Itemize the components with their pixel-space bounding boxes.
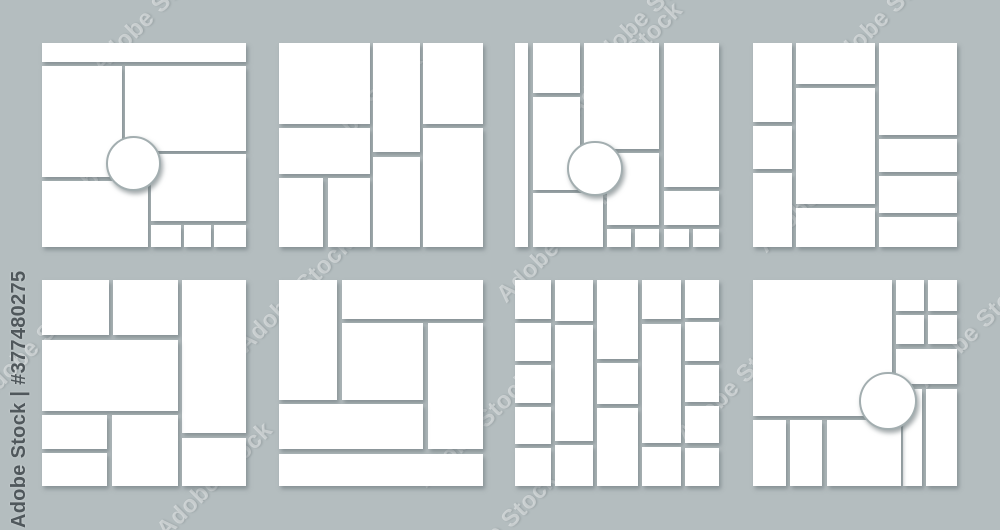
grid-cell (342, 323, 424, 400)
grid-cell (664, 229, 690, 247)
grid-cell (685, 322, 719, 361)
grid-cell (279, 43, 370, 124)
grid-cell (796, 88, 875, 204)
circle-frame (106, 136, 161, 191)
grid-cell (555, 280, 593, 321)
grid-cell (753, 43, 792, 122)
grid-cell (423, 43, 483, 124)
grid-cell (42, 415, 107, 448)
grid-cell (635, 229, 659, 247)
grid-cell (664, 43, 719, 187)
grid-cell (42, 280, 109, 335)
grid-cell (42, 43, 246, 62)
grid-cell (151, 154, 246, 221)
grid-cell (879, 43, 957, 135)
grid-cell (214, 225, 246, 247)
moodboard-template-5 (42, 280, 246, 486)
grid-cell (279, 280, 337, 400)
grid-cell (607, 229, 631, 247)
grid-cell (685, 406, 719, 443)
grid-cell (515, 43, 528, 247)
grid-cell (373, 157, 420, 247)
grid-cell (373, 43, 420, 152)
grid-cell (827, 420, 901, 486)
grid-cell (515, 407, 551, 445)
grid-cell (342, 280, 483, 319)
grid-cell (685, 448, 719, 486)
grid-cell (597, 280, 638, 359)
grid-cell (879, 217, 957, 247)
grid-cell (642, 324, 681, 443)
grid-cell (664, 191, 719, 225)
grid-cell (279, 404, 423, 449)
grid-cell (597, 408, 638, 486)
moodboard-template-6 (279, 280, 483, 486)
grid-cell (533, 43, 581, 93)
grid-cell (423, 128, 483, 247)
grid-cell (328, 178, 370, 247)
grid-cell (796, 208, 875, 247)
moodboard-template-1 (42, 43, 246, 247)
grid-cell (113, 280, 178, 335)
moodboard-template-8 (753, 280, 957, 486)
grid-cell (184, 225, 211, 247)
stock-image-canvas: Adobe StockAdobe StockAdobe StockAdobe S… (0, 0, 1000, 530)
stock-id-watermark: Adobe Stock | #377480275 (8, 271, 31, 528)
grid-cell (597, 363, 638, 404)
moodboard-template-7 (515, 280, 719, 486)
grid-cell (685, 280, 719, 318)
grid-cell (515, 280, 551, 319)
grid-cell (796, 43, 875, 84)
grid-cell (533, 193, 603, 247)
grid-cell (693, 229, 719, 247)
boards-layer (0, 0, 1000, 530)
moodboard-template-4 (753, 43, 957, 247)
grid-cell (428, 323, 483, 450)
grid-cell (896, 280, 924, 311)
grid-cell (279, 454, 483, 486)
grid-cell (926, 389, 957, 486)
grid-cell (182, 280, 246, 433)
grid-cell (879, 139, 957, 172)
grid-cell (584, 43, 659, 149)
grid-cell (279, 178, 323, 247)
grid-cell (42, 340, 178, 411)
grid-cell (279, 128, 370, 174)
grid-cell (790, 420, 823, 486)
grid-cell (555, 325, 593, 441)
grid-cell (555, 445, 593, 486)
grid-cell (896, 315, 924, 344)
grid-cell (642, 447, 681, 486)
moodboard-template-2 (279, 43, 483, 247)
grid-cell (515, 448, 551, 486)
grid-cell (182, 438, 246, 486)
grid-cell (928, 280, 957, 311)
grid-cell (753, 420, 786, 486)
circle-frame (859, 372, 917, 430)
grid-cell (642, 280, 681, 319)
grid-cell (42, 453, 107, 486)
grid-cell (42, 181, 148, 247)
circle-frame (567, 141, 622, 196)
grid-cell (928, 315, 957, 344)
grid-cell (515, 365, 551, 402)
grid-cell (753, 173, 792, 247)
grid-cell (151, 225, 181, 247)
grid-cell (753, 126, 792, 169)
grid-cell (879, 176, 957, 212)
grid-cell (515, 323, 551, 361)
moodboard-template-3 (515, 43, 719, 247)
grid-cell (685, 365, 719, 402)
grid-cell (112, 415, 178, 486)
